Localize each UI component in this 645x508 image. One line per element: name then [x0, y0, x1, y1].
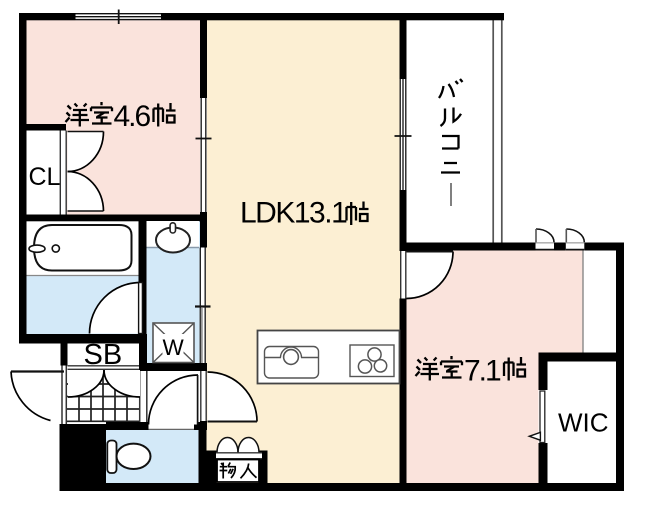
svg-text:4.6: 4.6 [114, 100, 151, 133]
svg-text:WIC: WIC [558, 408, 609, 438]
svg-text:SB: SB [84, 339, 123, 371]
svg-text:CL: CL [29, 163, 61, 191]
svg-text:LDK13.1: LDK13.1 [240, 197, 347, 230]
svg-text:7.1: 7.1 [464, 355, 501, 388]
svg-text:W: W [163, 335, 185, 360]
